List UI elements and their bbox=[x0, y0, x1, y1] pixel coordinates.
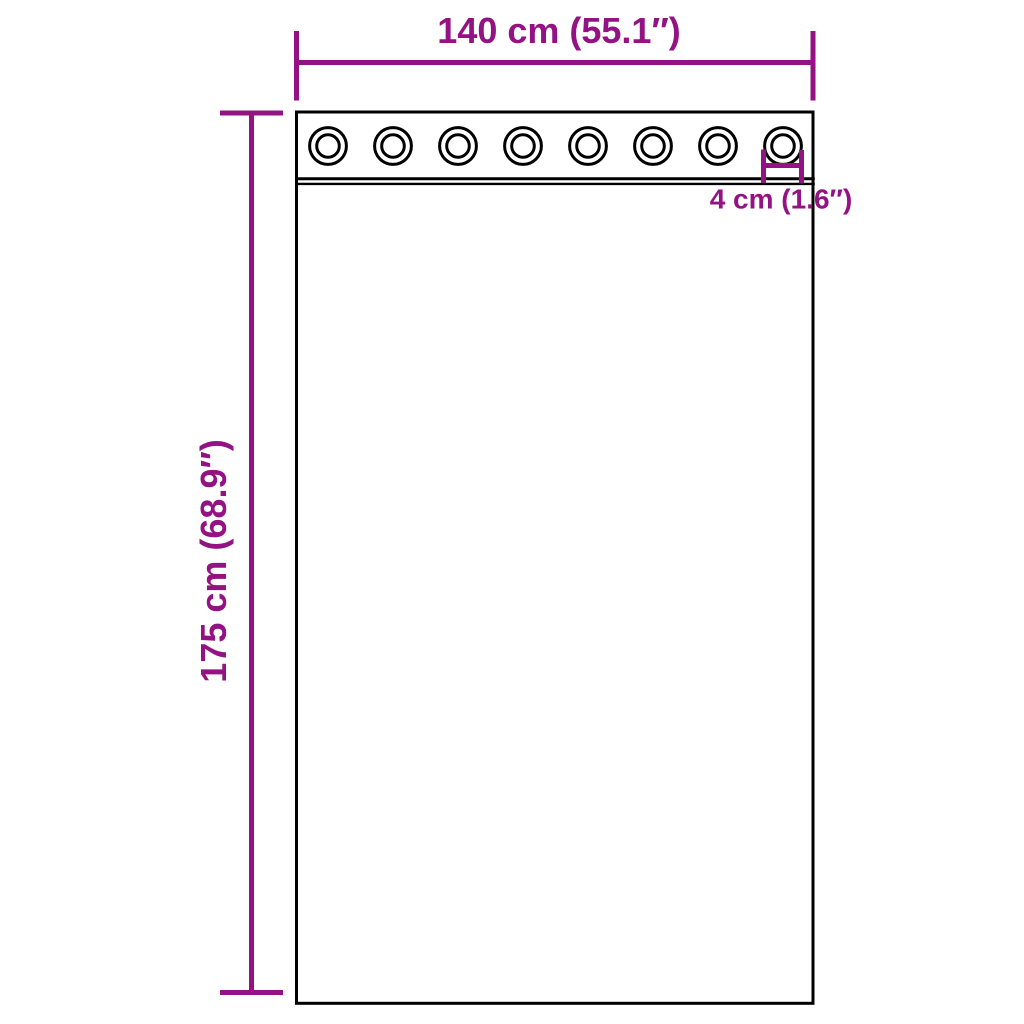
svg-text:175 cm (68.9″): 175 cm (68.9″) bbox=[193, 439, 234, 682]
svg-text:4 cm (1.6″): 4 cm (1.6″) bbox=[710, 184, 853, 215]
svg-text:140 cm (55.1″): 140 cm (55.1″) bbox=[437, 10, 680, 51]
